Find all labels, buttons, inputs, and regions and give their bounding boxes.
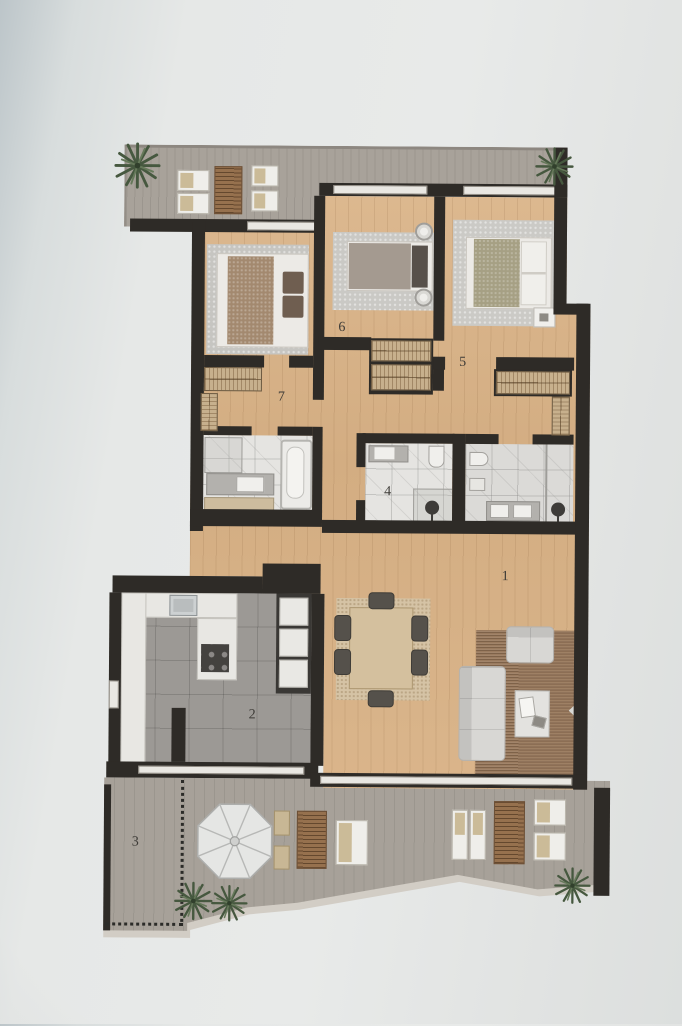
cooktop <box>201 644 229 672</box>
pillow <box>412 245 428 287</box>
sink <box>236 476 264 492</box>
sun-lounger <box>470 810 486 860</box>
sun-lounger <box>336 820 368 865</box>
shower <box>204 437 242 473</box>
wall <box>103 784 111 930</box>
palm-plant-icon <box>553 863 591 907</box>
palm-plant-icon <box>533 146 575 186</box>
wall <box>204 355 264 367</box>
bed-duvet <box>227 256 274 344</box>
outdoor-chair <box>251 190 278 211</box>
palm-plant-icon <box>110 141 164 189</box>
wall <box>573 304 590 790</box>
wall <box>433 197 445 341</box>
window <box>333 185 427 195</box>
window <box>463 186 557 196</box>
sofa <box>458 666 506 761</box>
wall <box>310 594 324 766</box>
parasol-umbrella-icon <box>192 800 277 883</box>
sun-lounger <box>534 799 566 825</box>
pouf <box>414 289 432 307</box>
palm-plant-icon <box>209 884 249 922</box>
chair <box>411 649 428 675</box>
appliance <box>279 660 308 688</box>
pillow <box>282 296 303 318</box>
floor-plan: 1 2 3 4 5 6 7 <box>0 0 682 1026</box>
wardrobe <box>371 340 431 361</box>
sink <box>490 504 509 518</box>
bed-duvet <box>349 243 411 289</box>
appliance <box>279 629 308 657</box>
room-label-kitchen: 2 <box>249 707 256 723</box>
kitchen-counter <box>120 592 146 762</box>
room-label-living: 1 <box>502 569 509 585</box>
sink <box>513 504 532 518</box>
wall <box>190 509 322 527</box>
room-label-dressing: 7 <box>278 390 285 406</box>
room-label-bedroom-middle: 6 <box>338 320 345 336</box>
wall <box>171 708 185 762</box>
sun-lounger <box>177 170 209 191</box>
coffee-table <box>514 690 549 737</box>
wall <box>262 563 320 593</box>
wardrobe <box>201 393 218 431</box>
palm-plant-icon <box>173 881 213 921</box>
window <box>138 766 304 775</box>
wall <box>356 433 365 467</box>
wall <box>363 433 455 444</box>
chair <box>334 615 351 641</box>
wall <box>593 788 610 896</box>
wall <box>289 356 313 368</box>
sun-lounger <box>452 810 468 860</box>
chair <box>411 616 428 642</box>
wardrobe <box>371 364 431 390</box>
wardrobe <box>552 396 570 435</box>
shower-head-icon <box>551 502 565 516</box>
pillow <box>283 272 304 294</box>
room-label-terrace: 3 <box>132 835 139 851</box>
wall <box>278 427 313 436</box>
appliance <box>279 598 308 626</box>
outdoor-table <box>494 801 525 864</box>
bidet <box>469 478 485 491</box>
wall <box>452 434 466 524</box>
chair <box>368 690 394 707</box>
bathtub <box>280 440 312 510</box>
sun-lounger <box>534 832 566 860</box>
room-label-bedroom-right: 5 <box>459 355 466 371</box>
wall <box>533 434 574 444</box>
wall <box>318 337 371 350</box>
kitchen-sink <box>169 595 197 616</box>
wall <box>312 427 323 523</box>
window <box>109 680 119 708</box>
room-label-bathroom: 4 <box>384 484 391 500</box>
sink <box>374 447 394 459</box>
outdoor-table <box>214 166 242 214</box>
wall <box>112 575 262 593</box>
wall <box>313 196 325 400</box>
window <box>247 221 317 230</box>
wall <box>466 434 499 444</box>
boundary-dashed-line <box>105 922 183 926</box>
wardrobe <box>496 371 570 395</box>
armchair <box>506 626 554 663</box>
nightstand <box>533 307 555 327</box>
chair <box>368 592 394 609</box>
wall <box>553 197 567 309</box>
shower-head-icon <box>425 501 439 515</box>
wardrobe <box>204 367 262 391</box>
wall <box>108 592 121 762</box>
chair <box>334 649 351 675</box>
toilet <box>469 452 488 466</box>
pillow <box>521 241 547 305</box>
toilet <box>428 446 444 468</box>
wall <box>190 221 205 531</box>
bed-duvet <box>473 239 519 307</box>
wall <box>322 520 576 535</box>
outdoor-table <box>297 811 327 869</box>
pouf <box>415 223 433 241</box>
outdoor-chair <box>251 165 278 186</box>
dining-table <box>349 607 414 689</box>
sun-lounger <box>177 193 209 214</box>
